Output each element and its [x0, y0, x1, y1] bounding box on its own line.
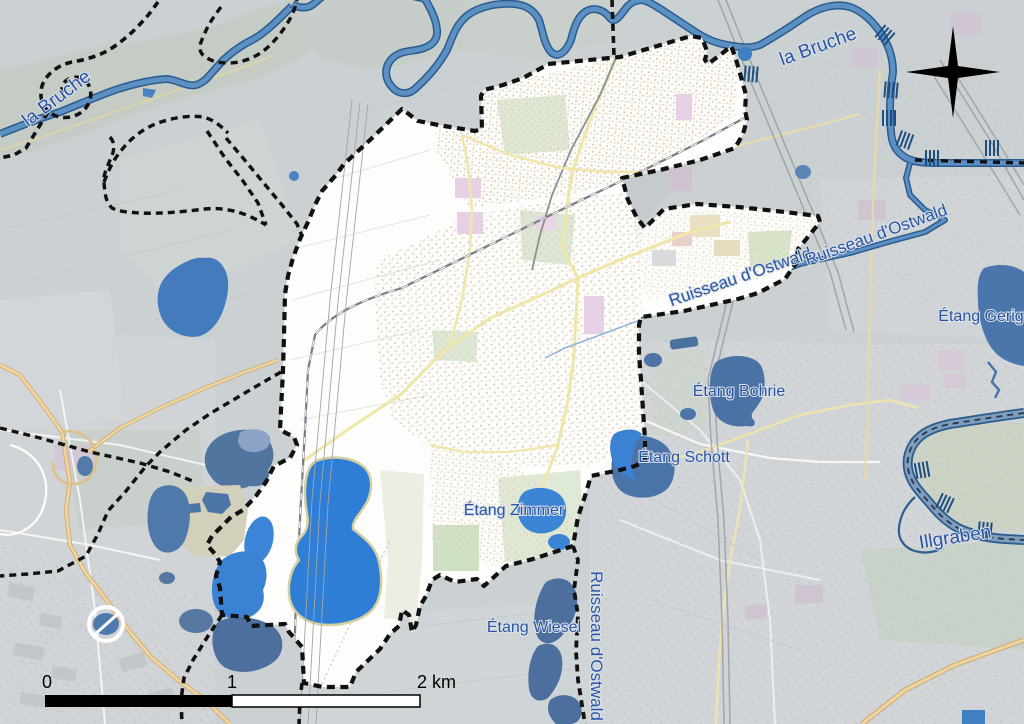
svg-text:2 km: 2 km — [417, 672, 456, 692]
svg-text:Étang Zimmer: Étang Zimmer — [464, 500, 565, 519]
svg-text:Étang Wiesel: Étang Wiesel — [487, 617, 581, 636]
svg-text:Étang Gerig: Étang Gerig — [938, 306, 1023, 325]
svg-text:Étang Bohrie: Étang Bohrie — [693, 381, 786, 400]
svg-text:Ruisseau d'Ostwald: Ruisseau d'Ostwald — [587, 571, 606, 721]
svg-text:Étang Schott: Étang Schott — [638, 447, 730, 466]
svg-text:1: 1 — [227, 672, 237, 692]
svg-text:0: 0 — [42, 672, 52, 692]
